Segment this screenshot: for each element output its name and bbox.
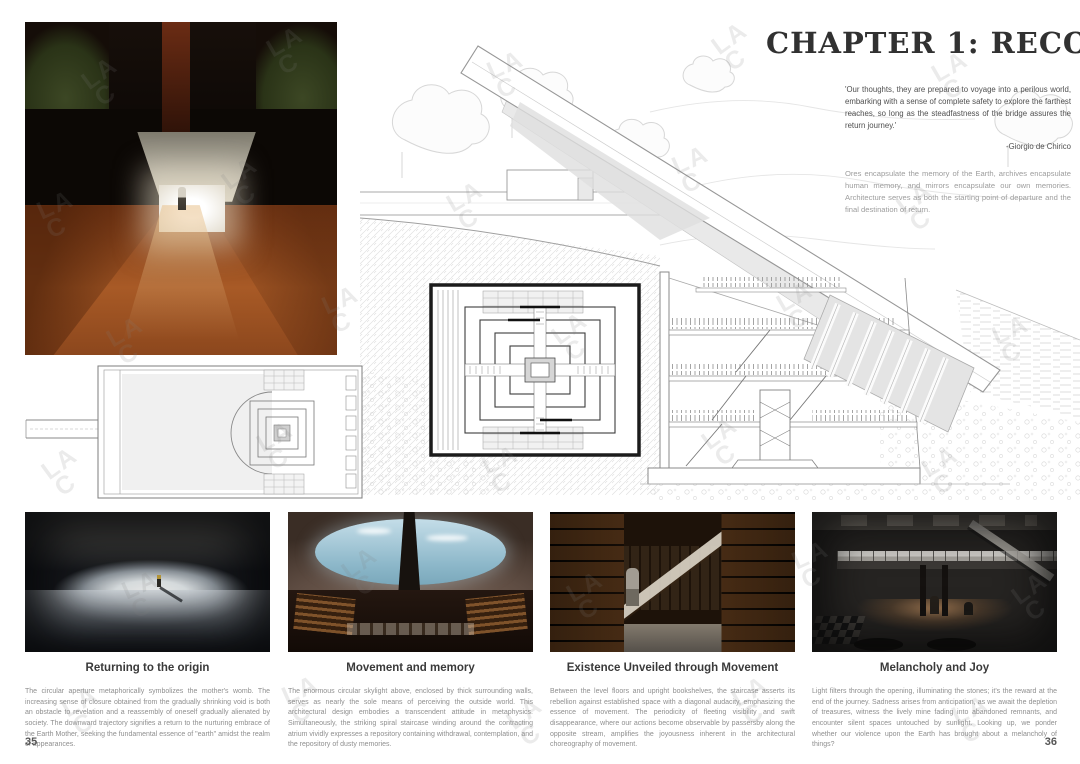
reading-tables — [347, 623, 474, 636]
portfolio-spread: CHAPTER 1: RECORD 'Our thoughts, they ar… — [0, 0, 1080, 764]
quote-text: 'Our thoughts, they are prepared to voya… — [845, 84, 1071, 132]
aisle-floor — [619, 624, 727, 652]
section-body-existence: Between the level floors and upright boo… — [550, 687, 795, 751]
quote-attribution: -Giorgio de Chirico — [845, 142, 1071, 151]
figure-silhouette — [178, 187, 186, 210]
render-bookshelf-aisle-stair — [550, 512, 795, 652]
section-title-movement-memory: Movement and memory — [288, 662, 533, 674]
section-title-existence: Existence Unveiled through Movement — [550, 662, 795, 674]
bookshelf-wall-right — [722, 512, 796, 652]
central-stair-tower — [726, 390, 824, 476]
corten-fin — [162, 22, 190, 135]
vignette — [812, 512, 1057, 652]
floor-plan-drawing — [20, 362, 365, 510]
figure-silhouette — [626, 568, 639, 606]
bookshelf-wall-left — [550, 512, 624, 652]
bookshelf-right — [465, 593, 527, 635]
plan-corridor-arm — [26, 420, 100, 438]
render-corten-entry-passage — [25, 22, 337, 355]
page-number-right: 36 — [1045, 736, 1057, 748]
spiral-plan-detail-drawing — [428, 282, 642, 458]
section-title-melancholy-joy: Melancholy and Joy — [812, 662, 1057, 674]
section-title-returning: Returning to the origin — [25, 662, 270, 674]
section-body-melancholy-joy: Light filters through the opening, illum… — [812, 687, 1057, 751]
section-body-returning: The circular aperture metaphorically sym… — [25, 687, 270, 751]
render-oval-skylight-atrium — [288, 512, 533, 652]
quote-block: 'Our thoughts, they are prepared to voya… — [845, 84, 1071, 215]
render-cavern-aperture — [25, 512, 270, 652]
chapter-title: CHAPTER 1: RECORD — [766, 26, 1066, 60]
vignette — [25, 512, 270, 652]
cloud — [357, 528, 391, 534]
section-body-movement-memory: The enormous circular skylight above, en… — [288, 687, 533, 751]
chapter-intro: Ores encapsulate the memory of the Earth… — [845, 168, 1071, 215]
page-number-left: 35 — [25, 736, 37, 748]
cloud — [426, 535, 468, 542]
render-sunken-courtyard — [812, 512, 1057, 652]
